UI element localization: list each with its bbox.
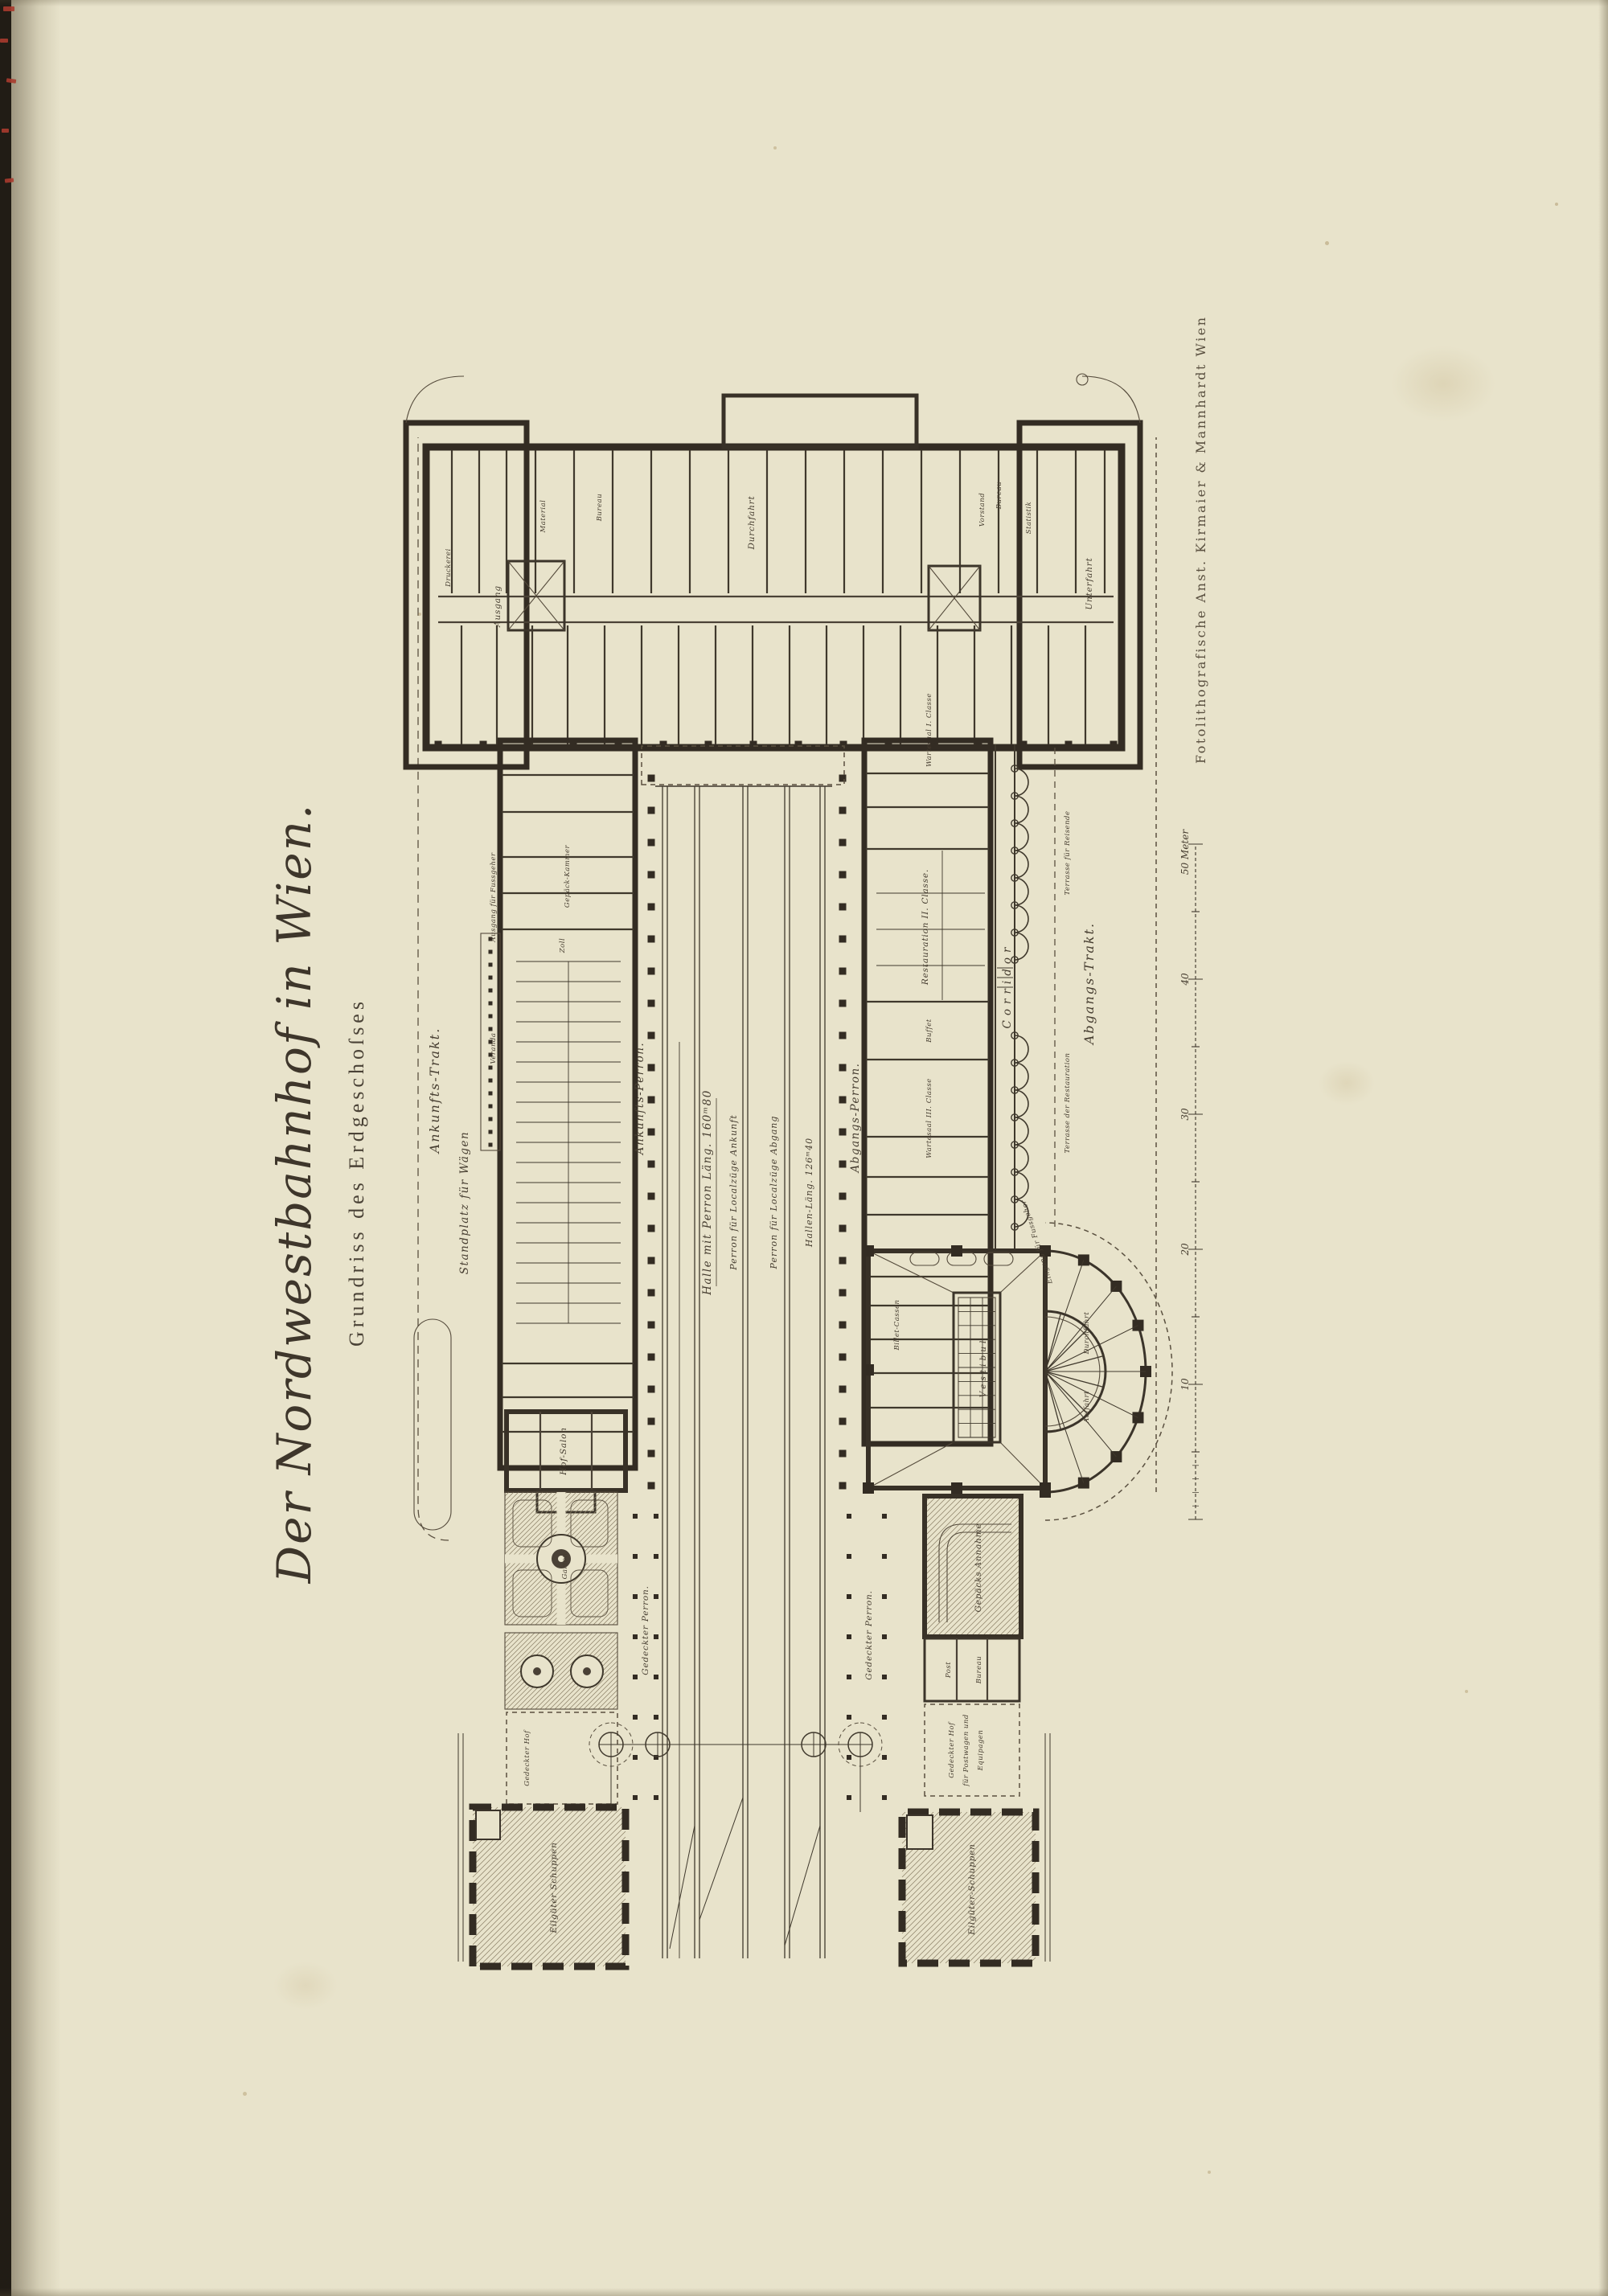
- foxing-speck: [1325, 241, 1329, 245]
- label-eilgueter-2: Eilgüter-Schuppen: [967, 1843, 977, 1935]
- paper-stain: [273, 1962, 338, 2010]
- head-partitions: [435, 450, 1118, 748]
- label-zoll: Zoll: [559, 938, 567, 953]
- label-abgangs-perron: Abgangs-Perron.: [849, 1063, 862, 1175]
- head-building: Ausgang Druckerei Material Bureau Bureau…: [406, 374, 1140, 767]
- scale-bar: 10 20 30 40 50 Meter: [1179, 829, 1203, 1519]
- label-terrasse-restauration: Terrasse der Restauration: [1064, 1052, 1072, 1153]
- foxing-speck: [1555, 203, 1558, 206]
- tracks: [655, 786, 832, 1958]
- label-halle: Halle mit Perron Läng. 160ᵐ80: [701, 1089, 714, 1296]
- label-veranda: Veranda: [490, 1032, 498, 1064]
- label-durchfahrt-rotunde: Durchfahrt: [1083, 1312, 1091, 1355]
- page-title: Der Nordwestbahnhof in Wien.: [267, 803, 322, 1585]
- binder-red-mark: [0, 39, 8, 43]
- foxing-speck: [243, 2092, 247, 2096]
- label-ausgang-fussgeher: Ausgang für Fussgeher: [490, 852, 498, 943]
- label-ausgang: Ausgang: [493, 585, 503, 628]
- label-terrasse-reisende: Terrasse für Reisende: [1064, 810, 1072, 895]
- page-edge-top: [0, 0, 1608, 6]
- page-edge-bottom: [0, 2288, 1608, 2296]
- foxing-speck: [418, 613, 421, 616]
- label-eingang-fussgeher: Eingang für Fussgeher: [1019, 1199, 1055, 1286]
- foxing-speck: [773, 146, 777, 150]
- title-block: Der Nordwestbahnhof in Wien. Grundriss d…: [267, 803, 368, 1585]
- paper-stain: [1391, 346, 1495, 422]
- label-gedeckter-perron-1: Gedeckter Perron.: [641, 1585, 650, 1675]
- scanned-plate-page: Der Nordwestbahnhof in Wien. Grundriss d…: [0, 0, 1608, 2296]
- head-cross-platform: [642, 746, 844, 785]
- binder-red-mark: [3, 6, 14, 11]
- scale-label-40: 40: [1179, 973, 1191, 986]
- label-wartesaal-1: Wartesaal I. Classe: [925, 693, 933, 767]
- carriage-loop: [414, 1319, 451, 1530]
- label-durchfahrt-kopf: Durchfahrt: [747, 496, 757, 551]
- label-bureau-3: Bureau: [975, 1656, 983, 1684]
- rotunda-piers: [863, 1245, 1151, 1498]
- label-druckerei: Druckerei: [445, 548, 453, 588]
- binder-red-mark: [2, 129, 9, 133]
- label-unterfahrt: Unterfahrt: [1085, 557, 1094, 609]
- label-gepaeck-kammer: Gepäck-Kammer: [564, 845, 572, 908]
- scale-label-30: 30: [1179, 1108, 1191, 1121]
- scale-label-50: 50 Meter: [1179, 829, 1191, 875]
- page-subtitle: Grundriss des Erdgeschoſses: [345, 998, 368, 1347]
- label-corridor: Corridor: [1001, 943, 1014, 1029]
- binding-shadow: [11, 0, 61, 2296]
- departure-wing: Abgangs-Perron. Billet-Cassen Wartesaal …: [849, 740, 1097, 1444]
- label-abgangs-trakt: Abgangs-Trakt.: [1081, 922, 1097, 1046]
- label-statistik: Statistik: [1025, 502, 1033, 535]
- label-gepaecks-annahme: Gepäcks Annahme: [974, 1523, 983, 1613]
- label-gedeckter-perron-2: Gedeckter Perron.: [864, 1590, 874, 1679]
- label-vorstand: Vorstand: [978, 493, 987, 527]
- post-rooms: [925, 1638, 1019, 1701]
- paper-stain: [1319, 1061, 1375, 1105]
- vestibule-rotunda: Vestibul Auffahrt Durchfahrt Eingang für…: [863, 1199, 1172, 1520]
- label-hof-salon: Hof-Salon: [559, 1427, 568, 1476]
- label-garten: Garten: [561, 1553, 569, 1580]
- label-auffahrt: Auffahrt: [1083, 1391, 1091, 1424]
- label-vestibul: Vestibul: [978, 1338, 988, 1398]
- train-hall: Halle mit Perron Läng. 160ᵐ80 Perron für…: [633, 746, 887, 1958]
- label-bureau-1: Bureau: [596, 494, 604, 522]
- label-hallen-laeng: Hallen-Läng. 126ᵐ40: [804, 1138, 814, 1248]
- post-court: [925, 1704, 1019, 1796]
- label-ankunfts-perron: Ankunfts-Perron.: [634, 1042, 646, 1156]
- label-standplatz: Standplatz für Wägen: [458, 1131, 471, 1274]
- floor-plan-drawing: Der Nordwestbahnhof in Wien. Grundriss d…: [0, 0, 1608, 2296]
- label-eilgueter-1: Eilgüter Schuppen: [549, 1842, 559, 1933]
- label-restauration: Restauration II. Classe.: [921, 869, 930, 986]
- arrival-wing: Ankunfts-Trakt. Standplatz für Wägen Ver…: [427, 740, 646, 1468]
- label-hof-postwagen-2: für Postwagen und: [962, 1714, 970, 1787]
- label-post: Post: [945, 1662, 953, 1679]
- label-buffet: Buffet: [925, 1019, 933, 1043]
- arrival-partitions: [489, 775, 634, 1432]
- label-gedeckter-hof: Gedeckter Hof: [523, 1729, 531, 1786]
- foxing-speck: [1208, 2171, 1211, 2174]
- scale-label-20: 20: [1179, 1243, 1191, 1257]
- label-hof-postwagen-1: Gedeckter Hof: [948, 1721, 956, 1778]
- scale-label-10: 10: [1179, 1378, 1191, 1391]
- imprint: Fotolithografische Anst. Kirmaier & Mann…: [1193, 315, 1208, 764]
- binding-strip: [0, 0, 11, 2296]
- hall-colonnades: [633, 775, 887, 1801]
- label-billet-cassen: Billet-Cassen: [893, 1299, 901, 1351]
- label-hof-postwagen-3: Equipagen: [977, 1730, 985, 1772]
- label-ankunfts-trakt: Ankunfts-Trakt.: [427, 1027, 442, 1155]
- page-edge-right: [1598, 0, 1608, 2296]
- portico: [724, 396, 917, 447]
- label-material: Material: [539, 500, 548, 534]
- label-bureau-2: Bureau: [995, 482, 1003, 510]
- label-wartesaal-3: Wartesaal III. Classe: [925, 1078, 933, 1158]
- label-local-abgang: Perron für Localzüge Abgang: [769, 1116, 779, 1270]
- label-local-ankunft: Perron für Localzüge Ankunft: [728, 1114, 739, 1271]
- foxing-speck: [1465, 1690, 1468, 1693]
